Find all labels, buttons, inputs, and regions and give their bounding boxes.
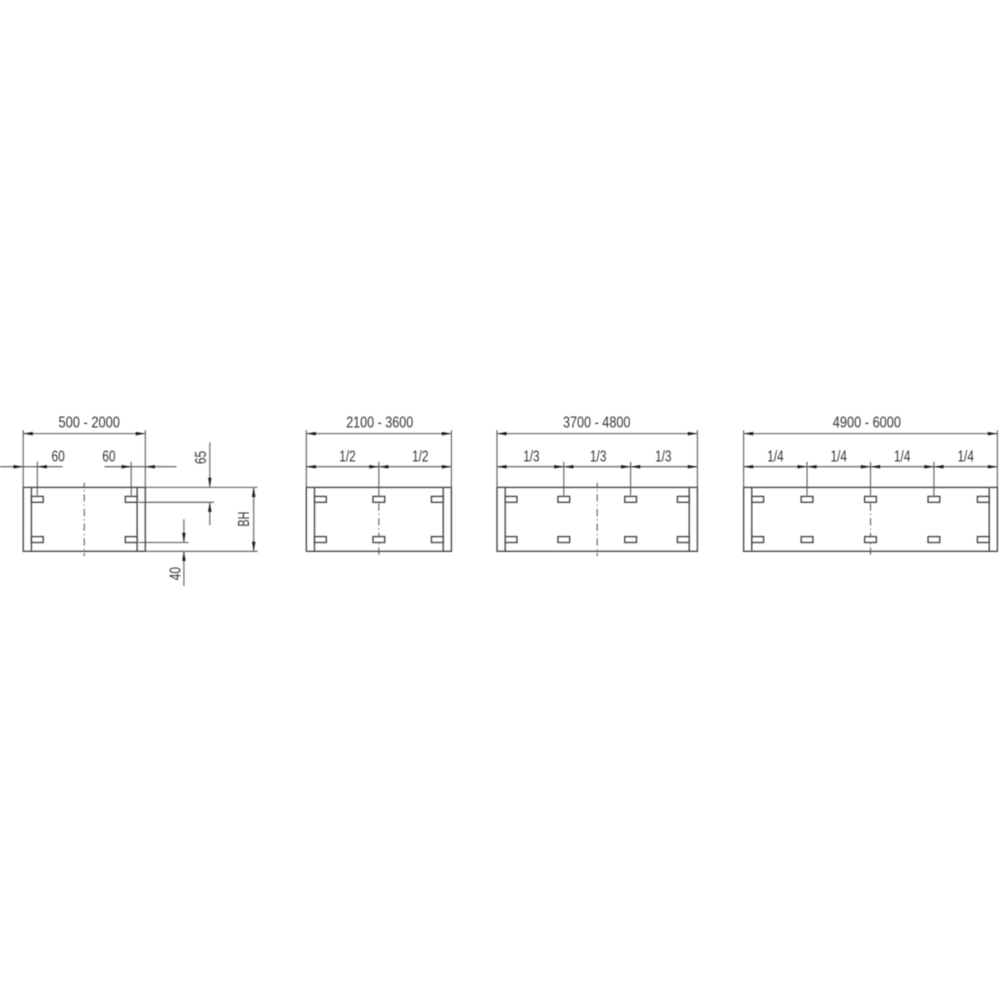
svg-text:500 - 2000: 500 - 2000 bbox=[58, 415, 120, 432]
svg-text:1/3: 1/3 bbox=[655, 449, 671, 466]
svg-text:1/3: 1/3 bbox=[590, 449, 606, 466]
svg-text:1/4: 1/4 bbox=[831, 449, 848, 466]
svg-text:3700 - 4800: 3700 - 4800 bbox=[563, 415, 631, 432]
svg-text:1/2: 1/2 bbox=[339, 449, 355, 466]
svg-text:1/4: 1/4 bbox=[767, 449, 784, 466]
svg-text:1/4: 1/4 bbox=[958, 449, 975, 466]
svg-text:BH: BH bbox=[236, 512, 253, 527]
svg-text:65: 65 bbox=[193, 451, 210, 465]
svg-text:4900 - 6000: 4900 - 6000 bbox=[833, 415, 901, 432]
svg-text:1/4: 1/4 bbox=[894, 449, 911, 466]
svg-text:60: 60 bbox=[51, 449, 65, 466]
svg-text:60: 60 bbox=[102, 449, 116, 466]
svg-text:1/3: 1/3 bbox=[523, 449, 539, 466]
svg-text:2100 - 3600: 2100 - 3600 bbox=[346, 415, 413, 432]
svg-text:1/2: 1/2 bbox=[412, 449, 428, 466]
svg-text:40: 40 bbox=[167, 567, 184, 581]
